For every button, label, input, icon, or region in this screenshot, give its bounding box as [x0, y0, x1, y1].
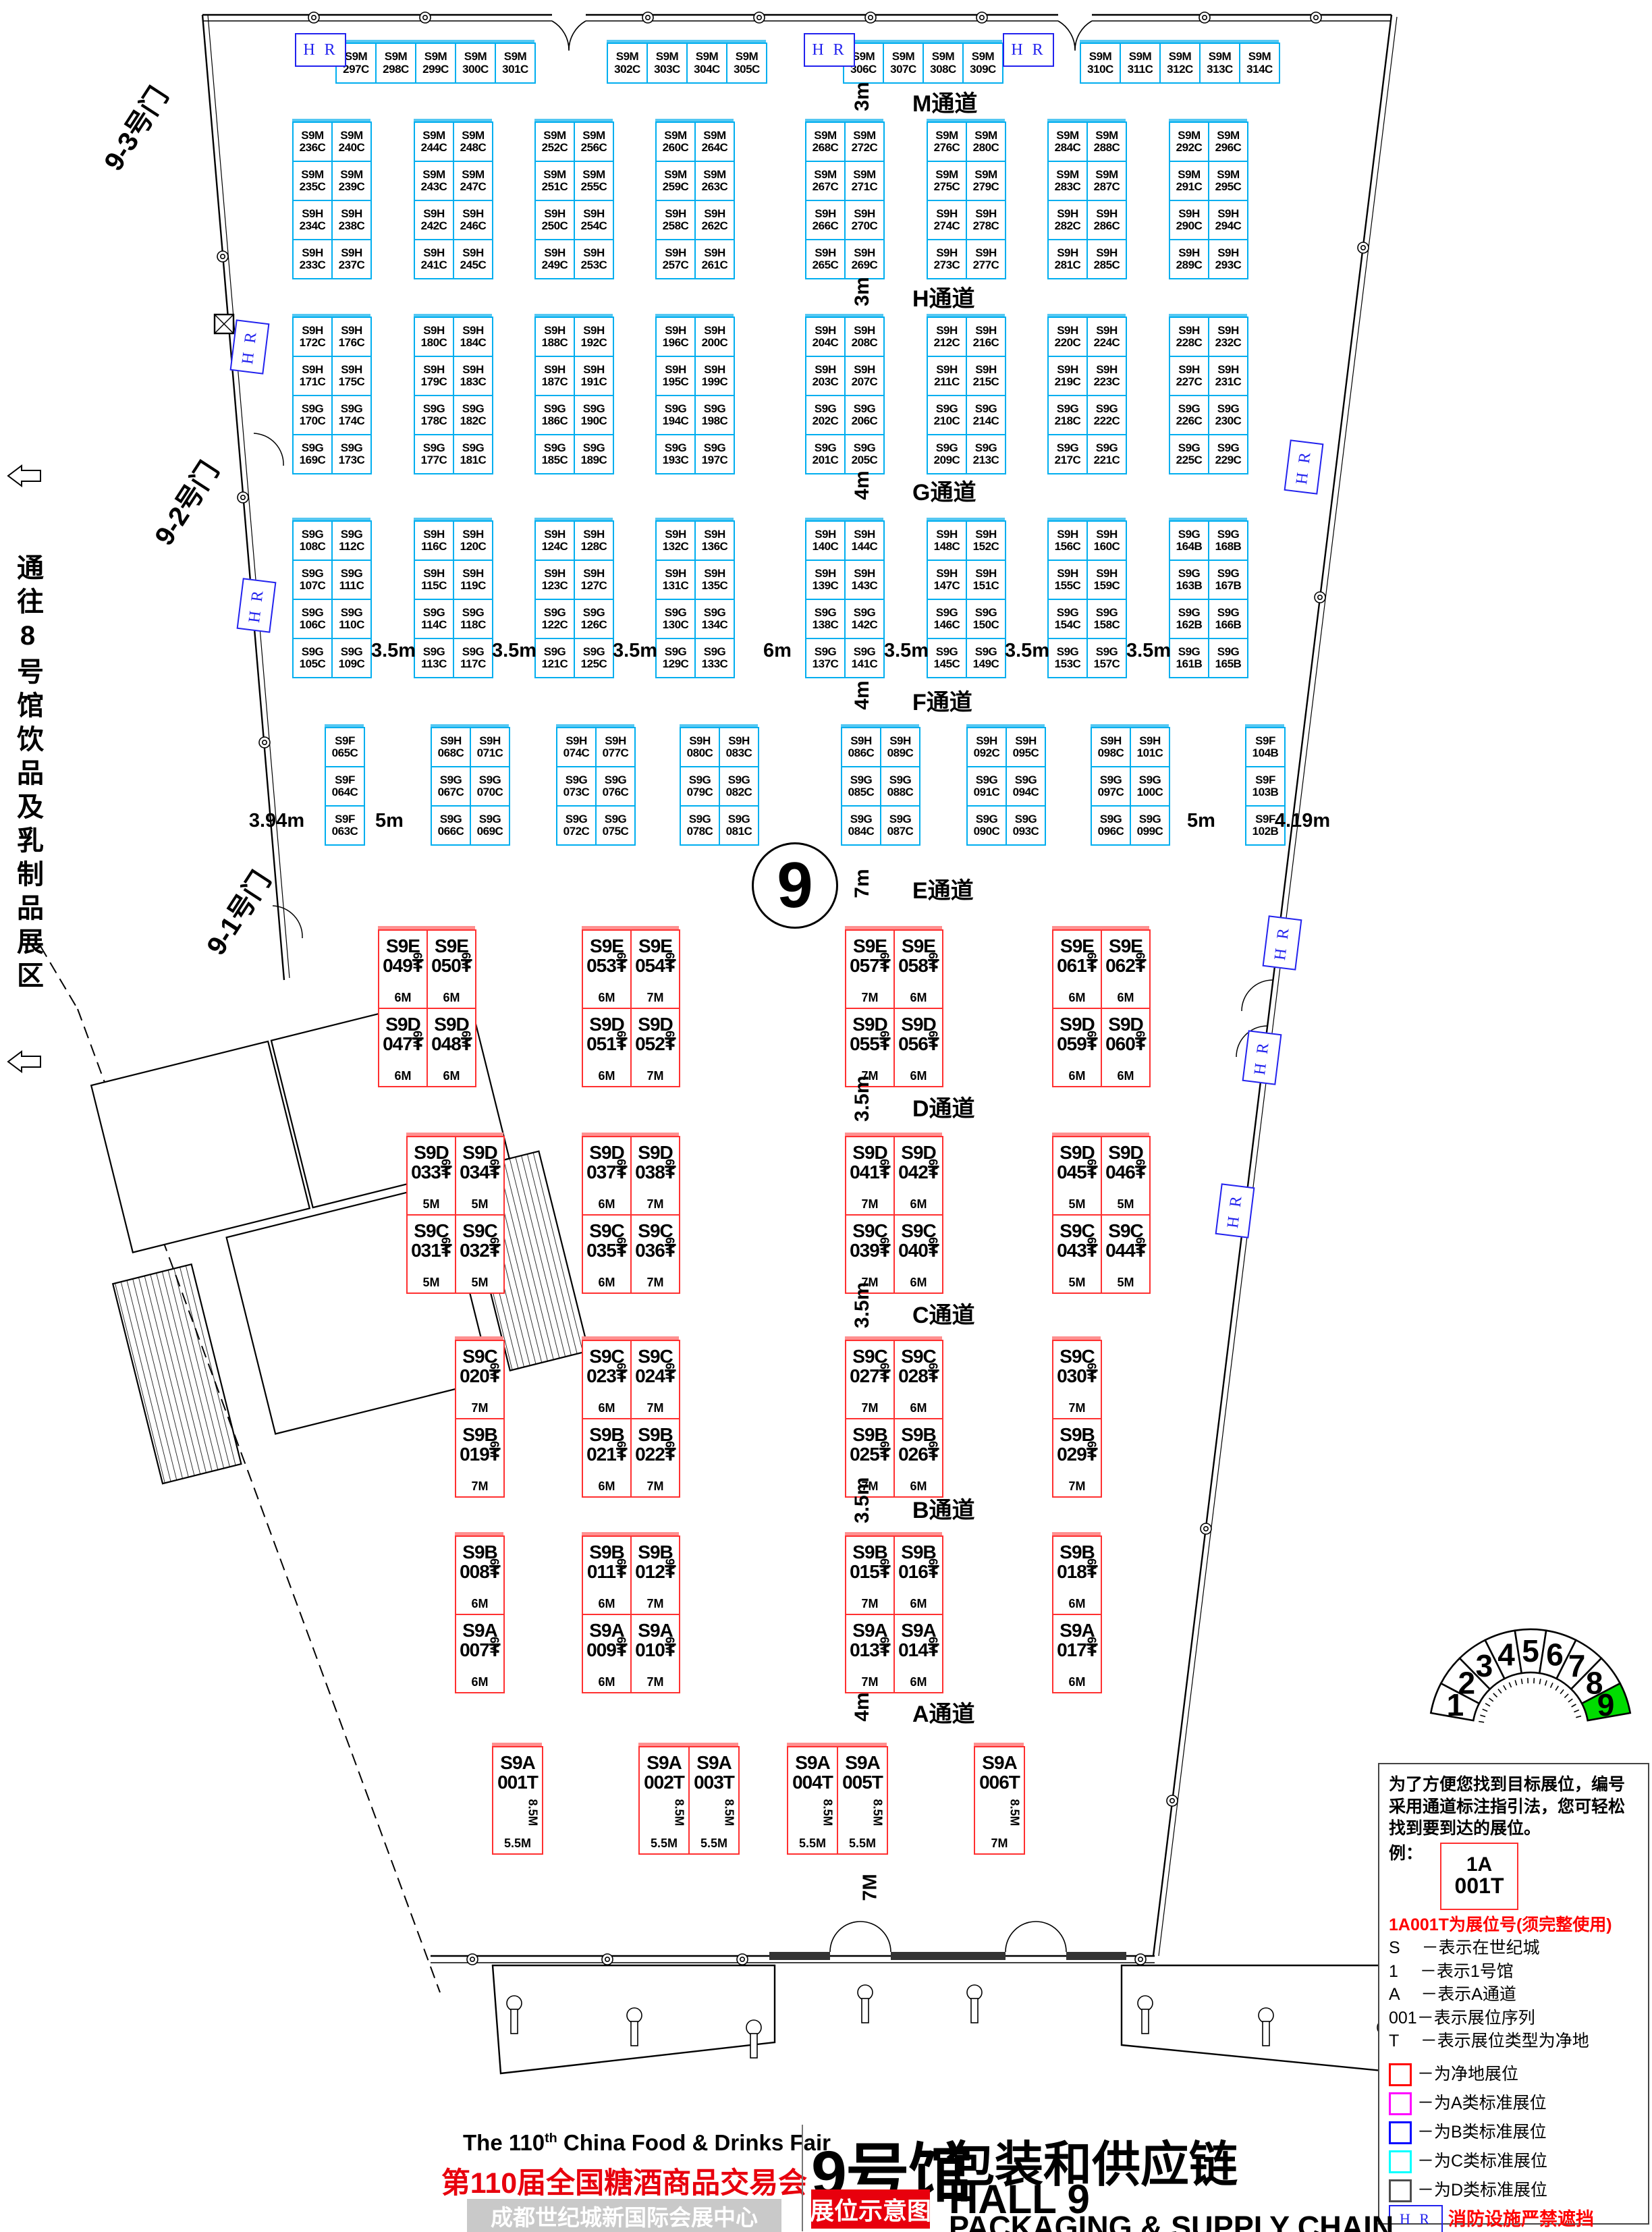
booth-number: 238C [339, 220, 365, 232]
booth-prefix: S9G [689, 813, 711, 825]
aisle-label-B通道: B通道 [912, 1492, 975, 1525]
booth-number: 185C [542, 454, 568, 466]
booth-S9H-224C: S9H224C [1086, 317, 1127, 357]
booth-depth-label: 6M [877, 1631, 891, 1660]
booth-S9H-215C: S9H215C [966, 356, 1006, 396]
booth-number: 285C [1094, 259, 1120, 271]
booth-S9H-290C: S9H290C [1169, 200, 1209, 240]
booth-number: 077C [603, 747, 629, 759]
booth-number: 195C [663, 376, 689, 388]
booth-depth-label: 6M [459, 946, 473, 976]
booth-number: 207C [852, 376, 878, 388]
booth-prefix: S9G [704, 442, 726, 454]
booth-prefix: S9H [1096, 325, 1118, 337]
booth-number: 163B [1176, 580, 1203, 592]
booth-width-label: 5M [1102, 1197, 1149, 1212]
booth-prefix: S9H [1217, 208, 1239, 220]
booth-S9E-049T: S9E049T6M6M [378, 929, 428, 1009]
booth-width-label: 5.5M [640, 1836, 688, 1851]
booth-number: 177C [421, 454, 447, 466]
fire-hydrant-icon: H R [1263, 915, 1302, 971]
swatch-label: －为B类标准展位 [1417, 2121, 1547, 2144]
booth-S9H-155C: S9H155C [1047, 560, 1088, 600]
booth-prefix: S9G [976, 813, 998, 825]
booth-depth-label: 6M [459, 1025, 473, 1054]
booth-number: 104B [1252, 747, 1279, 759]
booth-number: 302C [614, 63, 640, 76]
booth-number: 097C [1098, 786, 1124, 798]
booth-prefix: S9F [1255, 774, 1275, 786]
booth-prefix: S9H [854, 528, 875, 541]
swatch-color-icon [1389, 2121, 1412, 2144]
booth-width-label: 6M [583, 1675, 630, 1689]
booth-width-label: 7M [632, 1069, 679, 1083]
booth-prefix: S9M [656, 51, 678, 63]
booth-S9H-071C: S9H071C [470, 727, 510, 767]
booth-S9C-024T: S9C024T6M7M [630, 1340, 680, 1419]
booth-number: 235C [300, 181, 326, 193]
booth-depth-label: 6M [1084, 946, 1099, 976]
dimension-label: 3.5m [878, 640, 935, 662]
booth-S9M-271C: S9M271C [844, 161, 885, 201]
booth-number: 087C [887, 825, 914, 838]
booth-number: 125C [581, 658, 607, 670]
booth-width-label: 7M [846, 991, 893, 1005]
booth-number: 092C [974, 747, 1000, 759]
booth-number: 200C [702, 337, 728, 349]
booth-width-label: 7M [1053, 1401, 1101, 1415]
booth-number: 186C [542, 415, 568, 427]
booth-S9M-240C: S9M240C [331, 121, 372, 162]
booth-number: 101C [1137, 747, 1163, 759]
booth-width-label: 5.5M [690, 1836, 738, 1851]
booth-prefix: S9G [583, 403, 605, 415]
booth-width-label: 7M [632, 991, 679, 1005]
booth-number: 250C [542, 220, 568, 232]
booth-prefix: S9M [696, 51, 718, 63]
booth-number: 128C [581, 541, 607, 553]
booth-prefix: S9M [892, 51, 914, 63]
booth-prefix: S9H [341, 325, 362, 337]
booth-number: 203C [813, 376, 839, 388]
booth-S9M-243C: S9M243C [414, 161, 454, 201]
booth-number: 135C [702, 580, 728, 592]
booth-S9H-246C: S9H246C [453, 200, 493, 240]
booth-S9H-132C: S9H132C [655, 520, 696, 561]
booth-depth-label: 6M [410, 946, 424, 976]
legend-swatch-row: －为A类标准展位 [1389, 2091, 1640, 2117]
booth-depth-label: 6M [487, 1552, 501, 1582]
booth-number: 242C [421, 220, 447, 232]
booth-S9M-244C: S9M244C [414, 121, 454, 162]
booth-depth-label: 6M [1084, 1153, 1099, 1182]
aisle-label-F通道: F通道 [912, 684, 972, 717]
booth-prefix: S9H [462, 364, 484, 376]
booth-S9H-200C: S9H200C [694, 317, 735, 357]
booth-S9M-236C: S9M236C [292, 121, 333, 162]
booth-S9H-124C: S9H124C [534, 520, 575, 561]
booth-prefix: S9H [936, 247, 958, 259]
booth-number: 127C [581, 580, 607, 592]
booth-S9H-074C: S9H074C [556, 727, 597, 767]
booth-number: 116C [421, 541, 447, 553]
booth-prefix: S9H [936, 325, 958, 337]
booth-S9M-259C: S9M259C [655, 161, 696, 201]
booth-number: 289C [1176, 259, 1203, 271]
booth-S9G-110C: S9G110C [331, 599, 372, 639]
booth-depth-label: 8.5M [526, 1798, 540, 1828]
booth-width-label: 5.5M [838, 1836, 887, 1851]
booth-S9G-085C: S9G085C [841, 766, 881, 807]
booth-prefix: S9H [341, 208, 362, 220]
booth-S9H-077C: S9H077C [595, 727, 636, 767]
booth-width-label: 6M [583, 991, 630, 1005]
booth-S9A-017T: S9A017T6M6M [1052, 1614, 1102, 1693]
booth-prefix: S9G [665, 442, 687, 454]
booth-S9M-284C: S9M284C [1047, 121, 1088, 162]
aisle-label-C通道: C通道 [912, 1297, 975, 1330]
booth-number: 153C [1055, 658, 1081, 670]
booth-prefix: S9H [1096, 568, 1118, 580]
booth-depth-label: 8.5M [871, 1798, 885, 1828]
booth-prefix: S9H [583, 208, 605, 220]
booth-prefix: S9H [976, 735, 997, 747]
booth-S9H-123C: S9H123C [534, 560, 575, 600]
booth-number: 233C [300, 259, 326, 271]
booth-number: 174C [339, 415, 365, 427]
booth-width-label: 6M [583, 1069, 630, 1083]
booth-S9D-041T: S9D041T6M7M [845, 1136, 895, 1216]
booth-width-label: 7M [632, 1276, 679, 1290]
booth-prefix: S9G [854, 607, 876, 619]
left-arrow-icon [7, 464, 42, 487]
booth-S9H-151C: S9H151C [966, 560, 1006, 600]
booth-S9H-128C: S9H128C [574, 520, 614, 561]
booth-prefix: S9H [1096, 247, 1118, 259]
main-entrance-door-2 [1006, 1922, 1066, 1952]
booth-width-label: 7M [846, 1197, 893, 1212]
fire-hydrant-icon: H R [1389, 2205, 1443, 2232]
booth-S9D-045T: S9D045T6M5M [1052, 1136, 1102, 1216]
booth-number: 227C [1176, 376, 1203, 388]
booth-number: 243C [421, 181, 447, 193]
booth-prefix: S9M [852, 51, 875, 63]
booth-prefix: S9H [704, 208, 725, 220]
booth-prefix: S9G [850, 774, 873, 786]
booth-number: 140C [813, 541, 839, 553]
booth-number: 168B [1215, 541, 1242, 553]
booth-S9H-119C: S9H119C [453, 560, 493, 600]
booth-S9G-230C: S9G230C [1208, 395, 1248, 435]
booth-number: 256C [581, 142, 607, 154]
booth-number: 182C [460, 415, 487, 427]
booth-prefix: S9M [616, 51, 638, 63]
booth-prefix: S9M [814, 130, 836, 142]
booth-S9H-127C: S9H127C [574, 560, 614, 600]
dimension-label: 7M [860, 1859, 882, 1916]
booth-S9G-126C: S9G126C [574, 599, 614, 639]
booth-S9H-278C: S9H278C [966, 200, 1006, 240]
booth-number: 080C [687, 747, 713, 759]
booth-number: 078C [687, 825, 713, 838]
booth-S9G-167B: S9G167B [1208, 560, 1248, 600]
legend-swatch-row: －为B类标准展位 [1389, 2120, 1640, 2146]
booth-number: 179C [421, 376, 447, 388]
booth-prefix: S9M [932, 51, 954, 63]
booth-S9C-023T: S9C023T6M6M [582, 1340, 632, 1419]
booth-S9H-219C: S9H219C [1047, 356, 1088, 396]
booth-S9G-091C: S9G091C [966, 766, 1007, 807]
booth-number: 193C [663, 454, 689, 466]
booth-number: 300C [462, 63, 489, 76]
booth-S9F-063C: S9F063C [325, 805, 365, 846]
booth-prefix: S9H [1100, 735, 1122, 747]
booth-prefix: S9M [543, 169, 566, 181]
booth-S9H-176C: S9H176C [331, 317, 372, 357]
booth-number: 245C [460, 259, 487, 271]
booth-prefix: S9M [1129, 51, 1151, 63]
booth-depth-label: 6M [663, 1357, 677, 1386]
booth-prefix: S9M [340, 130, 362, 142]
booth-S9H-180C: S9H180C [414, 317, 454, 357]
booth-depth-label: 9M [663, 1552, 677, 1582]
booth-S9B-029T: S9B029T6M7M [1052, 1418, 1102, 1498]
booth-depth-label: 6M [877, 1153, 891, 1182]
booth-number: 225C [1176, 454, 1203, 466]
booth-number: 124C [542, 541, 568, 553]
aisle-dim-E通道: 7m [851, 863, 874, 904]
booth-number: 217C [1055, 454, 1081, 466]
booth-S9G-217C: S9G217C [1047, 434, 1088, 474]
booth-prefix: S9G [1057, 607, 1079, 619]
booth-S9G-164B: S9G164B [1169, 520, 1209, 561]
booth-number: 211C [934, 376, 960, 388]
booth-number: 091C [974, 786, 1000, 798]
booth-S9M-252C: S9M252C [534, 121, 575, 162]
booth-prefix: S9H [1057, 325, 1078, 337]
booth-prefix: S9H [850, 735, 872, 747]
booth-prefix: S9M [1209, 51, 1231, 63]
booth-prefix: S9F [335, 735, 355, 747]
booth-number: 081C [726, 825, 752, 838]
booth-S9G-178C: S9G178C [414, 395, 454, 435]
booth-S9E-050T: S9E050T6M6M [426, 929, 476, 1009]
booth-S9H-282C: S9H282C [1047, 200, 1088, 240]
booth-number: 237C [339, 259, 365, 271]
booth-prefix: S9G [462, 403, 485, 415]
booth-prefix: S9M [1056, 169, 1078, 181]
booth-width-label: 6M [428, 991, 475, 1005]
booth-prefix: S9H [566, 735, 587, 747]
booth-prefix: S9G [936, 646, 958, 658]
booth-S9M-298C: S9M298C [375, 43, 416, 84]
booth-prefix: S9M [424, 51, 447, 63]
booth-S9M-301C: S9M301C [495, 43, 536, 84]
booth-number: 197C [702, 454, 728, 466]
booth-prefix: S9G [583, 442, 605, 454]
booth-prefix: S9G [1217, 528, 1240, 541]
legend-definitions: S －表示在世纪城1 －表示1号馆A －表示A通道001－表示展位序列T －表示… [1389, 1937, 1640, 2052]
booth-prefix: S9G [815, 403, 837, 415]
dimension-label: 4.19m [1274, 810, 1331, 832]
booth-number: 214C [973, 415, 999, 427]
booth-S9H-196C: S9H196C [655, 317, 696, 357]
booth-S9G-081C: S9G081C [719, 805, 759, 846]
booth-prefix: S9M [301, 169, 323, 181]
booth-S9B-019T: S9B019T6M7M [455, 1418, 505, 1498]
booth-prefix: S9H [1217, 364, 1239, 376]
booth-S9A-013T: S9A013T6M7M [845, 1614, 895, 1693]
booth-S9G-197C: S9G197C [694, 434, 735, 474]
booth-S9G-106C: S9G106C [292, 599, 333, 639]
booth-prefix: S9H [975, 325, 997, 337]
booth-prefix: S9M [504, 51, 526, 63]
booth-S9A-010T: S9A010T6M7M [630, 1614, 680, 1693]
booth-S9C-031T: S9C031T6M5M [406, 1214, 456, 1294]
booth-width-label: 5.5M [493, 1836, 542, 1851]
booth-prefix: S9H [605, 735, 626, 747]
dimension-label: 5m [1173, 810, 1230, 832]
fire-warning-text: 消防设施严禁遮挡 [1448, 2208, 1594, 2231]
booth-prefix: S9G [440, 774, 462, 786]
booth-S9H-144C: S9H144C [844, 520, 885, 561]
booth-depth-label: 8.5M [821, 1798, 835, 1828]
booth-number: 228C [1176, 337, 1203, 349]
booth-prefix: S9H [854, 568, 875, 580]
booth-number: 071C [477, 747, 503, 759]
booth-S9H-250C: S9H250C [534, 200, 575, 240]
booth-width-label: 6M [428, 1069, 475, 1083]
booth-prefix: S9M [340, 169, 362, 181]
aisle-dim-D通道: 3.5m [851, 1081, 874, 1122]
booth-number: 074C [563, 747, 590, 759]
booth-prefix: S9H [815, 247, 836, 259]
booth-width-label: 6M [583, 1276, 630, 1290]
booth-S9G-073C: S9G073C [556, 766, 597, 807]
booth-number: 314C [1246, 63, 1273, 76]
legend-intro: 为了方便您找到目标展位，编号采用通道标注指引法，您可轻松找到要到达的展位。 [1389, 1774, 1640, 1840]
booth-S9H-098C: S9H098C [1091, 727, 1131, 767]
booth-prefix: S9G [665, 607, 687, 619]
booth-S9C-043T: S9C043T6M5M [1052, 1214, 1102, 1294]
fire-hydrant-icon: H R [237, 578, 277, 633]
booth-S9G-138C: S9G138C [805, 599, 846, 639]
booth-number: 297C [343, 63, 369, 76]
booth-S9A-002T: S9A002T8.5M5.5M [638, 1746, 690, 1855]
booth-number: 287C [1094, 181, 1120, 193]
booth-prefix: S9G [854, 442, 876, 454]
booth-S9M-310C: S9M310C [1080, 43, 1121, 84]
booth-number: 172C [300, 337, 326, 349]
aisle-dim-F通道: 4m [851, 675, 874, 715]
booth-number: 257C [663, 259, 689, 271]
booth-S9H-136C: S9H136C [694, 520, 735, 561]
booth-number: 219C [1055, 376, 1081, 388]
booth-prefix: S9H [689, 735, 711, 747]
booth-number: 133C [702, 658, 728, 670]
booth-width-label: 6M [583, 1597, 630, 1611]
locator-hall-number: 4 [1497, 1637, 1515, 1672]
booth-number: 070C [477, 786, 503, 798]
booth-S9H-249C: S9H249C [534, 239, 575, 279]
booth-S9M-248C: S9M248C [453, 121, 493, 162]
booth-S9G-169C: S9G169C [292, 434, 333, 474]
booth-prefix: S9H [975, 247, 997, 259]
booth-number: 178C [421, 415, 447, 427]
booth-S9G-078C: S9G078C [680, 805, 720, 846]
booth-number: 132C [663, 541, 689, 553]
booth-number: 098C [1098, 747, 1124, 759]
booth-prefix: S9G [1178, 568, 1201, 580]
booth-S9D-034T: S9D034T6M5M [455, 1136, 505, 1216]
booth-number: 130C [663, 619, 689, 631]
booth-number: 139C [813, 580, 839, 592]
booth-prefix: S9G [566, 813, 588, 825]
booth-depth-label: 6M [614, 946, 628, 976]
swatch-label: －为A类标准展位 [1417, 2092, 1547, 2115]
booth-id: S9A005T [838, 1753, 887, 1792]
booth-number: 123C [542, 580, 568, 592]
booth-S9E-057T: S9E057T6M7M [845, 929, 895, 1009]
aisle-dim-B通道: 3.5m [851, 1483, 874, 1523]
booth-S9G-193C: S9G193C [655, 434, 696, 474]
booth-number: 283C [1055, 181, 1081, 193]
dimension-label: 3.5m [999, 640, 1055, 662]
booth-S9G-163B: S9G163B [1169, 560, 1209, 600]
booth-prefix: S9M [1169, 51, 1191, 63]
booth-prefix: S9F [1255, 735, 1275, 747]
booth-prefix: S9H [1178, 364, 1200, 376]
booth-S9D-038T: S9D038T6M7M [630, 1136, 680, 1216]
booth-prefix: S9H [544, 528, 566, 541]
fair-title-en: The 110th China Food & Drinks Fair [463, 2130, 784, 2156]
booth-S9C-028T: S9C028T6M6M [893, 1340, 943, 1419]
booth-S9H-147C: S9H147C [927, 560, 967, 600]
booth-prefix: S9G [302, 646, 324, 658]
booth-number: 254C [581, 220, 607, 232]
booth-S9F-065C: S9F065C [325, 727, 365, 767]
hall-locator-map: 123456789 [1416, 1614, 1645, 1747]
booth-S9C-027T: S9C027T6M7M [845, 1340, 895, 1419]
booth-S9D-033T: S9D033T6M5M [406, 1136, 456, 1216]
booth-number: 113C [421, 658, 447, 670]
booth-prefix: S9H [302, 208, 323, 220]
booth-prefix: S9H [704, 325, 725, 337]
booth-width-label: 6M [456, 1597, 503, 1611]
booth-S9H-120C: S9H120C [453, 520, 493, 561]
booth-prefix: S9H [815, 208, 836, 220]
aisle-label-H通道: H通道 [912, 280, 975, 313]
booth-depth-label: 6M [877, 1552, 891, 1582]
dimension-label: 3.94m [248, 810, 305, 832]
booth-number: 271C [852, 181, 878, 193]
swatch-label: －为D类标准展位 [1417, 2179, 1547, 2202]
booth-S9H-068C: S9H068C [431, 727, 471, 767]
booth-S9H-232C: S9H232C [1208, 317, 1248, 357]
booth-S9M-267C: S9M267C [805, 161, 846, 201]
booth-S9G-088C: S9G088C [880, 766, 920, 807]
booth-depth-label: 6M [877, 1435, 891, 1465]
booth-number: 099C [1137, 825, 1163, 838]
swatch-color-icon [1389, 2179, 1412, 2202]
booth-number: 121C [542, 658, 568, 670]
booth-number: 223C [1094, 376, 1120, 388]
legend-swatch-row: －为C类标准展位 [1389, 2149, 1640, 2175]
booth-width-label: 7M [975, 1836, 1024, 1851]
booth-S9H-115C: S9H115C [414, 560, 454, 600]
service-rooms-block [65, 984, 595, 1484]
booth-number: 213C [973, 454, 999, 466]
